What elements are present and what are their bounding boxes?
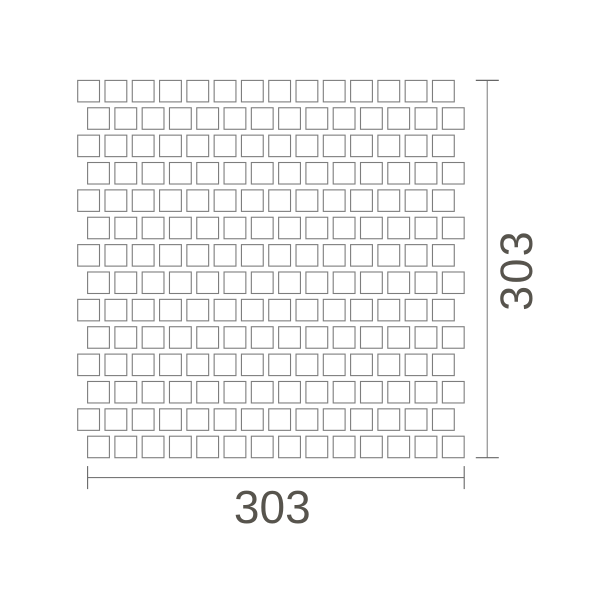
svg-text:303: 303 (234, 481, 311, 533)
svg-text:303: 303 (491, 229, 542, 311)
